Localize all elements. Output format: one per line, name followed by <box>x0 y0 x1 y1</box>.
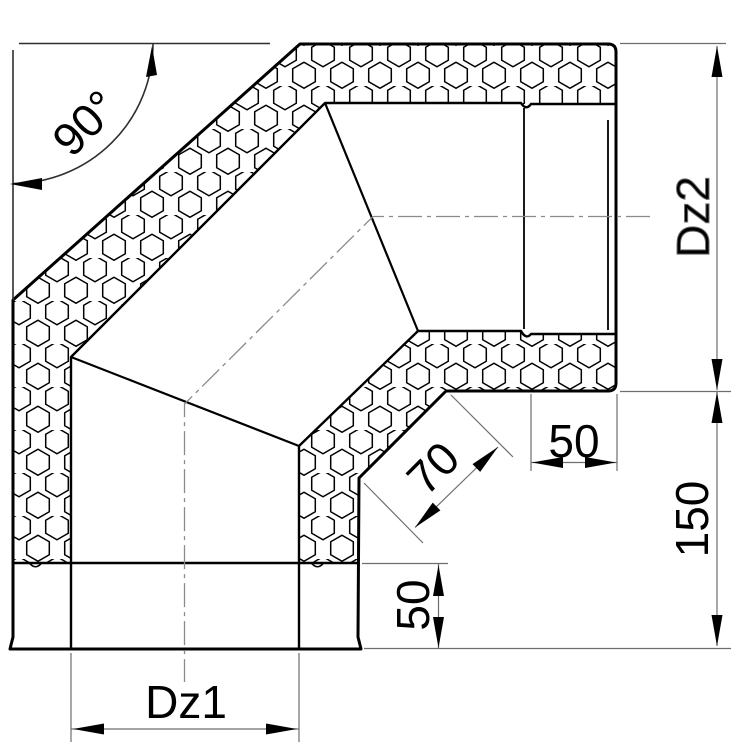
socket-right-label: 50 <box>548 415 599 467</box>
drawing-canvas: 90° Dz2 150 50 70 <box>0 0 737 750</box>
socket-bottom-label: 50 <box>387 579 439 630</box>
elbow-technical-drawing: 90° Dz2 150 50 70 <box>0 0 737 750</box>
offset-150-label: 150 <box>666 481 718 558</box>
dz2-label: Dz2 <box>667 176 719 258</box>
dz1-label: Dz1 <box>145 676 227 728</box>
